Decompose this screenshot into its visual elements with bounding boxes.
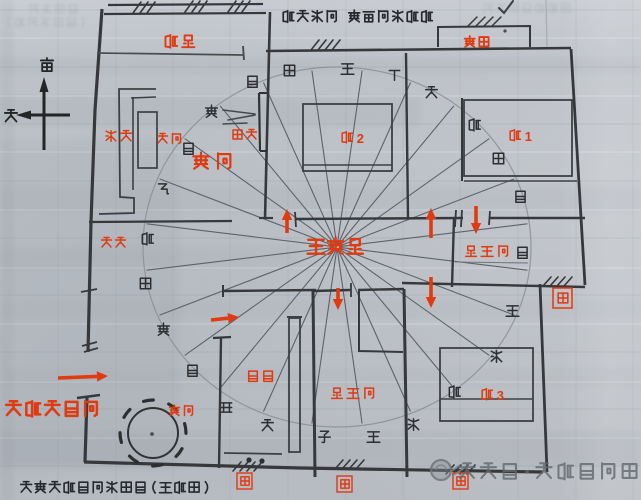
- svg-text:1: 1: [525, 129, 532, 144]
- svg-text:3: 3: [497, 388, 504, 403]
- svg-text:2: 2: [357, 131, 364, 146]
